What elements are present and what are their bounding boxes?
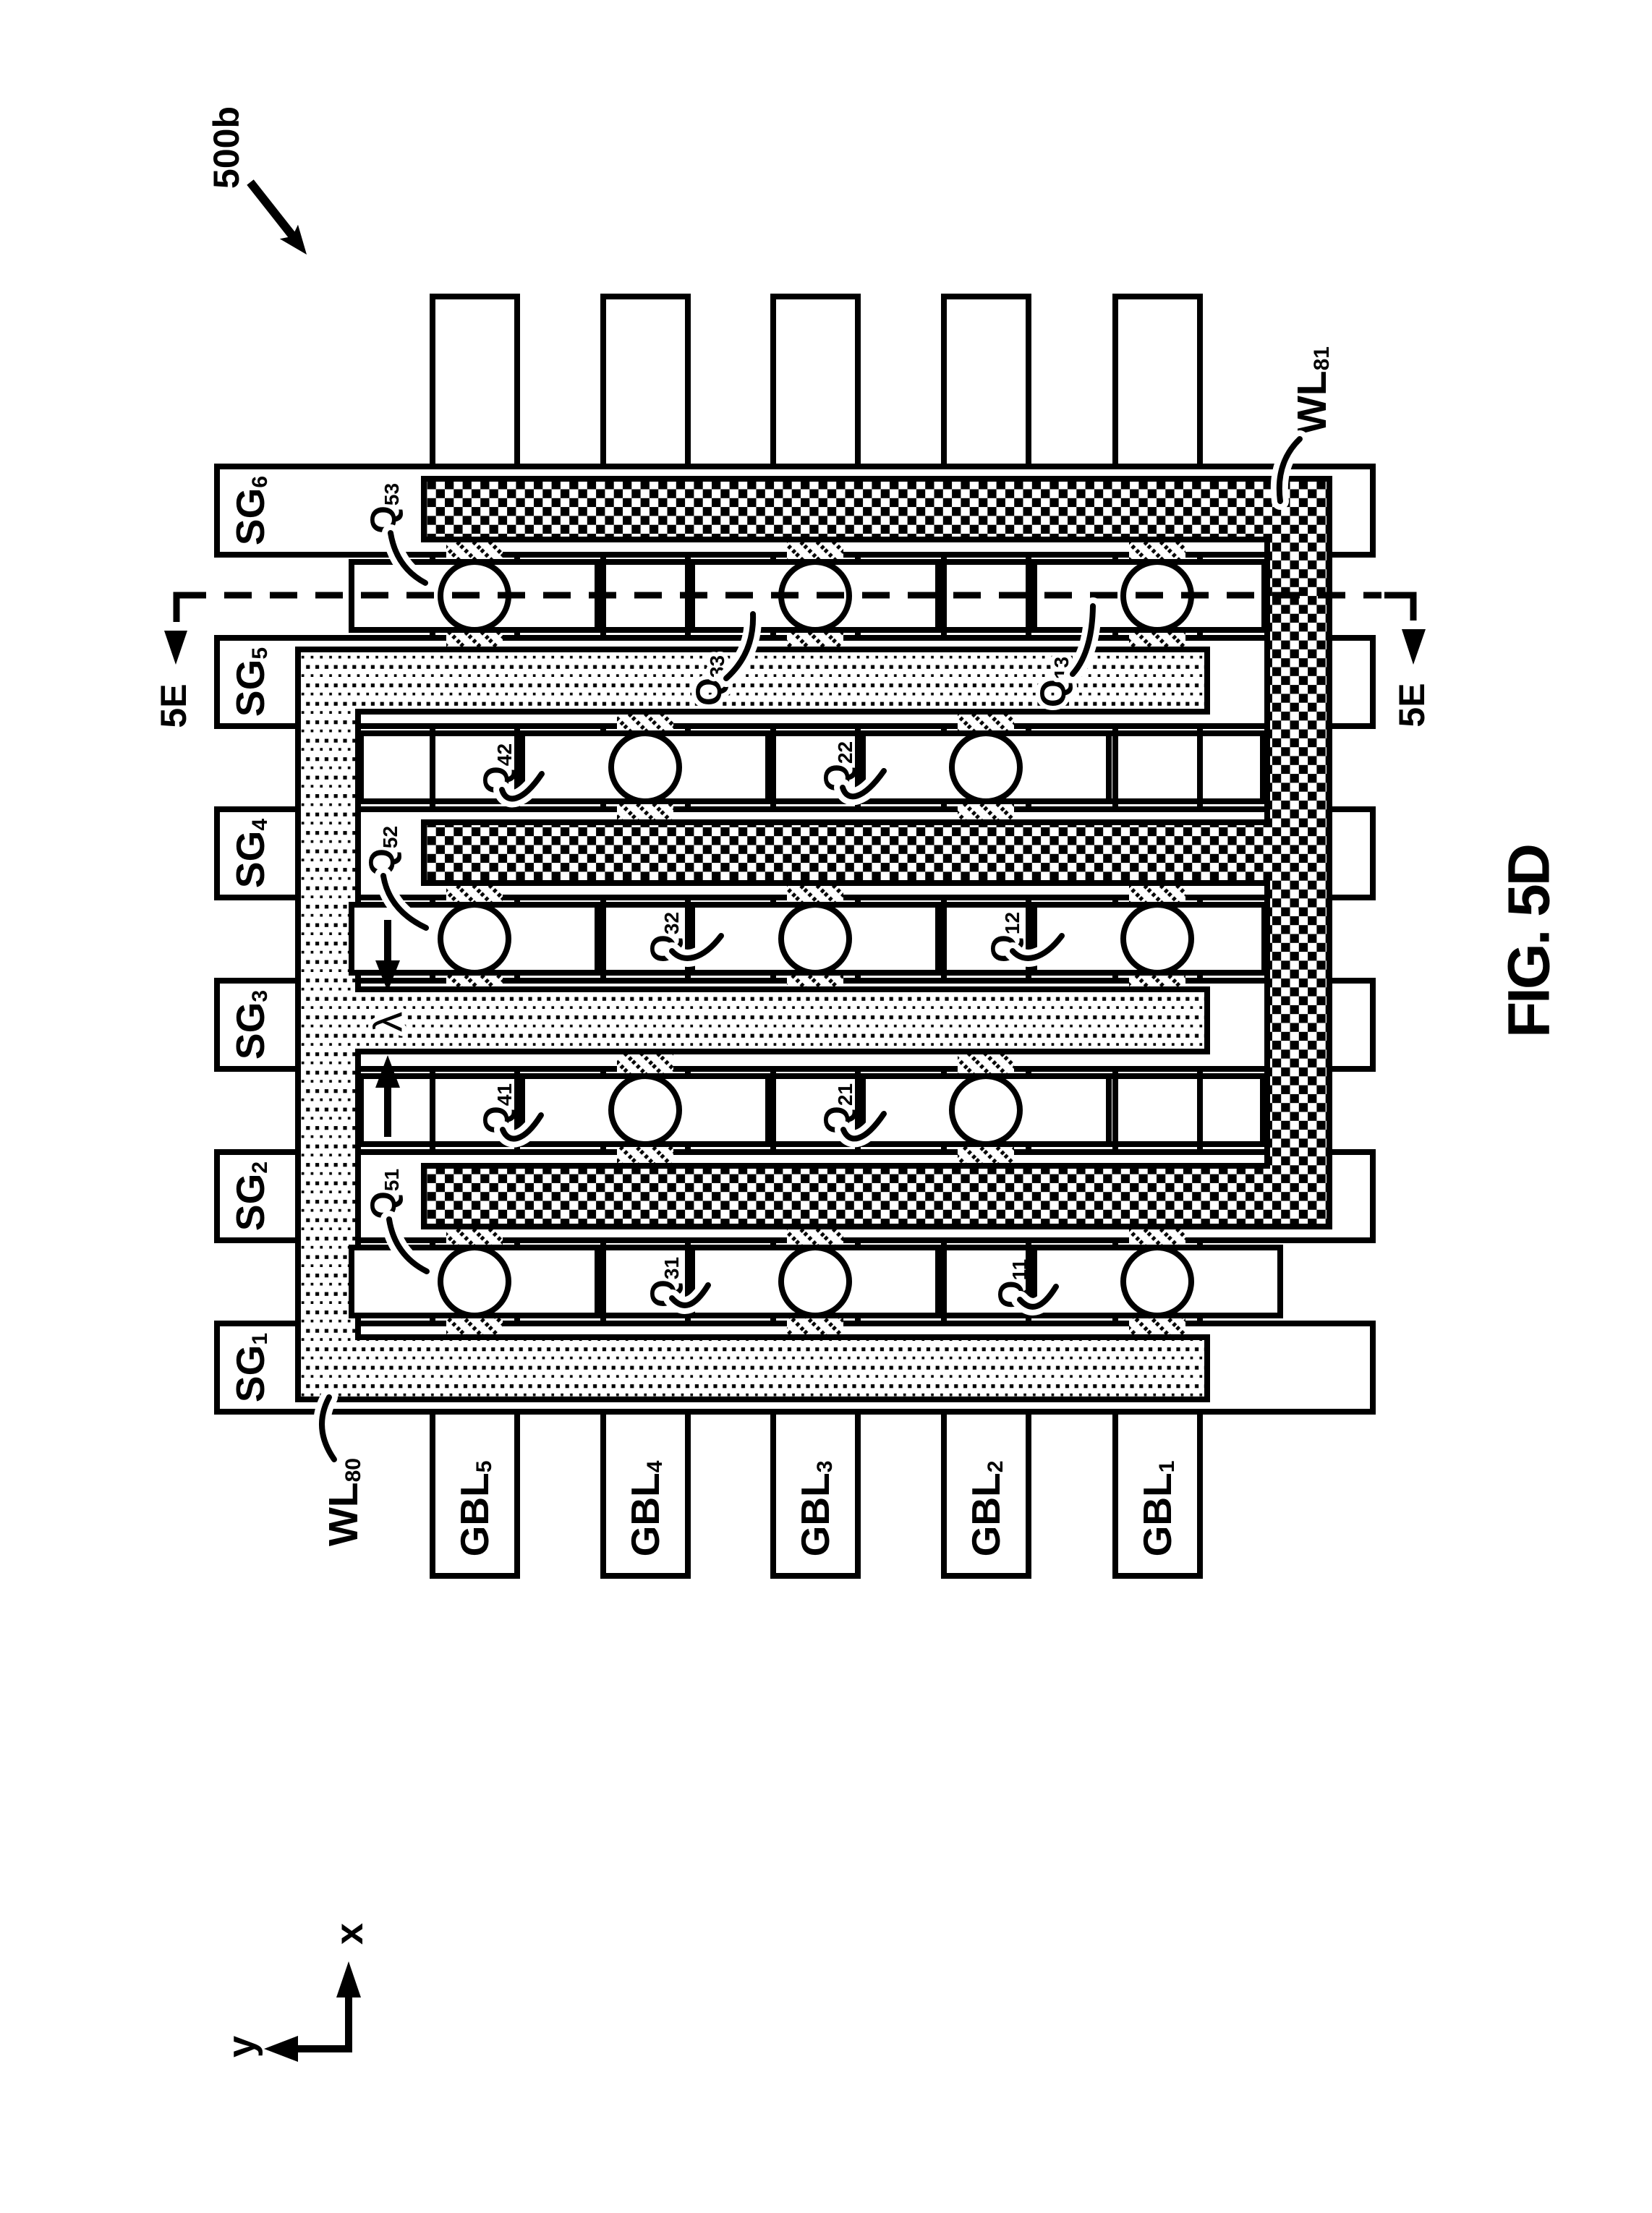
svg-text:y: y — [220, 2036, 263, 2058]
svg-text:x: x — [328, 1923, 371, 1945]
svg-text:5E: 5E — [153, 683, 194, 728]
svg-text:GBL5: GBL5 — [452, 1461, 497, 1557]
svg-text:FIG. 5D: FIG. 5D — [1496, 845, 1562, 1038]
svg-text:GBL3: GBL3 — [793, 1461, 838, 1557]
svg-text:500b: 500b — [206, 106, 247, 189]
svg-text:GBL2: GBL2 — [963, 1461, 1008, 1557]
svg-text:GBL4: GBL4 — [623, 1460, 668, 1556]
svg-text:GBL1: GBL1 — [1135, 1461, 1180, 1557]
svg-text:λ: λ — [365, 1012, 411, 1032]
svg-text:5E: 5E — [1392, 683, 1432, 727]
